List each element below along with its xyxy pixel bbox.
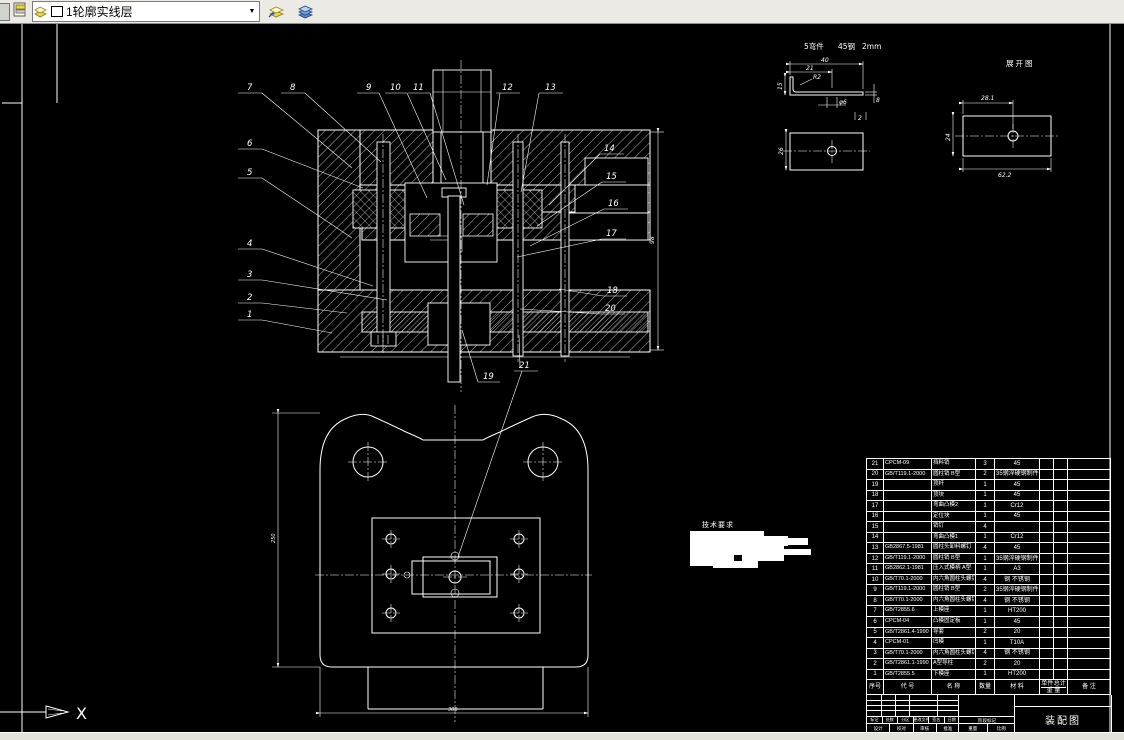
- parts-cell-name: 内六角圆柱头螺钉: [932, 648, 976, 659]
- parts-cell-remark: [1068, 669, 1111, 680]
- drawing-name-cell: 装配图: [1015, 695, 1111, 732]
- parts-cell-qty: 4: [976, 595, 995, 606]
- dim-plan-bottom: 300: [448, 707, 458, 713]
- parts-row: 13GB2867.5-1981圆柱头卸料螺钉445: [867, 543, 1111, 554]
- parts-cell-qty: 4: [976, 648, 995, 659]
- balloon-11: 11: [413, 83, 424, 93]
- ucs-icon: X: [0, 704, 87, 723]
- sign-label: 校对: [889, 723, 912, 732]
- parts-cell-name: 导套: [932, 627, 976, 638]
- parts-cell-no: 15: [867, 522, 884, 533]
- dim-unfold-bottom: 62.2: [998, 172, 1012, 179]
- rev-label: 处数: [882, 716, 898, 723]
- parts-list-table: 21CPCM-09挡料销34520GB/T119.1-2000圆柱销 B型235…: [866, 458, 1111, 695]
- parts-cell-qty: 4: [976, 543, 995, 554]
- parts-cell-code: [884, 490, 932, 501]
- parts-cell-name: 挡料销: [932, 459, 976, 470]
- parts-cell-w1: [1040, 532, 1054, 543]
- parts-cell-remark: [1068, 659, 1111, 670]
- parts-cell-code: GB/T70.1-2000: [884, 648, 932, 659]
- parts-cell-w2: [1054, 595, 1068, 606]
- parts-cell-qty: 1: [976, 564, 995, 575]
- parts-cell-material: 45: [995, 459, 1040, 470]
- balloon-6: 6: [247, 139, 253, 149]
- parts-cell-no: 5: [867, 627, 884, 638]
- balloon-13: 13: [545, 83, 556, 93]
- parts-cell-w2: [1054, 574, 1068, 585]
- parts-cell-code: [884, 511, 932, 522]
- detail-part-label: 5弯件: [804, 41, 824, 51]
- header-remark: 备 注: [1068, 680, 1111, 695]
- balloon-16: 16: [608, 199, 619, 209]
- balloon-10: 10: [390, 83, 401, 93]
- parts-cell-remark: [1068, 469, 1111, 480]
- parts-cell-name: 圆柱销 B型: [932, 469, 976, 480]
- parts-cell-no: 12: [867, 553, 884, 564]
- parts-cell-material: 45: [995, 490, 1040, 501]
- parts-cell-code: [884, 522, 932, 533]
- balloon-3: 3: [247, 270, 252, 280]
- balloon-19: 19: [483, 372, 494, 382]
- parts-row: 11GB2862.1-1981压入式模柄 A型1A3: [867, 564, 1111, 575]
- parts-cell-no: 3: [867, 648, 884, 659]
- parts-cell-material: 45: [995, 543, 1040, 554]
- parts-cell-material: 钢 不锈钢: [995, 574, 1040, 585]
- detail-material-label: 45钢: [838, 41, 855, 51]
- parts-cell-w2: [1054, 480, 1068, 491]
- parts-cell-remark: [1068, 616, 1111, 627]
- layers-toolbar: 1轮廓实线层 ▼: [0, 0, 1124, 24]
- parts-cell-w2: [1054, 659, 1068, 670]
- parts-cell-remark: [1068, 511, 1111, 522]
- parts-cell-no: 17: [867, 501, 884, 512]
- rev-label: 分区: [897, 716, 913, 723]
- parts-cell-w2: [1054, 638, 1068, 649]
- parts-cell-remark: [1068, 627, 1111, 638]
- tech-req-title: 技术要求: [702, 520, 734, 529]
- plan-view[interactable]: 300 250: [271, 405, 592, 722]
- parts-cell-name: 凹模: [932, 638, 976, 649]
- parts-cell-name: 内六角圆柱头螺钉: [932, 595, 976, 606]
- layer-name-label: 1轮廓实线层: [66, 3, 245, 20]
- balloon-9: 9: [366, 83, 371, 93]
- document-partial-icon: [0, 3, 10, 21]
- rev-label: 签名: [928, 716, 944, 723]
- header-weight-label: 重 量: [1041, 688, 1066, 694]
- parts-cell-w1: [1040, 627, 1054, 638]
- parts-cell-w2: [1054, 501, 1068, 512]
- sign-label: 批准: [936, 723, 959, 732]
- parts-cell-no: 1: [867, 669, 884, 680]
- parts-row: 4CPCM-01凹模1T10A: [867, 638, 1111, 649]
- sign-label: 设计: [867, 723, 889, 732]
- parts-cell-name: A型导柱: [932, 659, 976, 670]
- revision-grid: 标记 处数 分区 更改文件号 签名 日期 设计 校对 审核 批准: [867, 695, 959, 732]
- header-weight: 单件 总计 重 量: [1040, 680, 1068, 695]
- parts-cell-remark: [1068, 648, 1111, 659]
- dim-bent-plan-left: 26: [778, 147, 785, 155]
- parts-cell-qty: 2: [976, 585, 995, 596]
- parts-cell-name: 销钉: [932, 522, 976, 533]
- parts-row: 19顶杆145: [867, 480, 1111, 491]
- parts-row: 1GB/T2855.5下模座1HT200: [867, 669, 1111, 680]
- parts-cell-remark: [1068, 595, 1111, 606]
- parts-cell-w1: [1040, 659, 1054, 670]
- parts-cell-qty: 1: [976, 606, 995, 617]
- parts-cell-no: 11: [867, 564, 884, 575]
- parts-cell-code: GB/T2855.5: [884, 669, 932, 680]
- parts-cell-qty: 1: [976, 501, 995, 512]
- parts-cell-name: 压入式模柄 A型: [932, 564, 976, 575]
- parts-cell-code: GB/T2861.4-1990: [884, 627, 932, 638]
- parts-cell-material: 45: [995, 480, 1040, 491]
- header-code: 代 号: [884, 680, 932, 695]
- parts-cell-code: GB/T119.1-2000: [884, 585, 932, 596]
- parts-cell-material: 35钢淬硬钢制件: [995, 585, 1040, 596]
- parts-cell-qty: 1: [976, 616, 995, 627]
- parts-cell-no: 6: [867, 616, 884, 627]
- parts-cell-w2: [1054, 564, 1068, 575]
- parts-cell-w1: [1040, 490, 1054, 501]
- balloon-20: 20: [605, 304, 616, 314]
- parts-cell-w2: [1054, 669, 1068, 680]
- parts-cell-material: 45: [995, 616, 1040, 627]
- parts-cell-no: 2: [867, 659, 884, 670]
- parts-cell-qty: 4: [976, 522, 995, 533]
- scale-label: 比例: [987, 724, 1016, 732]
- balloon-12: 12: [502, 83, 513, 93]
- parts-cell-no: 9: [867, 585, 884, 596]
- parts-cell-qty: 1: [976, 480, 995, 491]
- parts-cell-remark: [1068, 522, 1111, 533]
- parts-cell-code: GB/T2855.6: [884, 606, 932, 617]
- parts-cell-material: 20: [995, 659, 1040, 670]
- parts-cell-name: 上模座: [932, 606, 976, 617]
- dim-section-height: 98: [649, 236, 656, 244]
- parts-cell-no: 20: [867, 469, 884, 480]
- parts-cell-no: 13: [867, 543, 884, 554]
- parts-cell-no: 4: [867, 638, 884, 649]
- dim-bent-top: 40: [821, 57, 829, 64]
- parts-cell-material: 45: [995, 511, 1040, 522]
- parts-cell-qty: 2: [976, 469, 995, 480]
- parts-row: 17弯曲凸模21Cr12: [867, 501, 1111, 512]
- dim-unfold-top: 28.1: [981, 95, 994, 102]
- parts-cell-qty: 2: [976, 627, 995, 638]
- parts-cell-w1: [1040, 648, 1054, 659]
- parts-row: 5GB/T2861.4-1990导套220: [867, 627, 1111, 638]
- parts-cell-code: CPCM-04: [884, 616, 932, 627]
- detail-unfolded[interactable]: 展开图 28.1 24 62.2: [945, 59, 1059, 179]
- parts-cell-no: 18: [867, 490, 884, 501]
- parts-cell-name: 弯曲凸模1: [932, 532, 976, 543]
- parts-cell-qty: 1: [976, 638, 995, 649]
- balloon-7: 7: [247, 83, 253, 93]
- parts-cell-w2: [1054, 627, 1068, 638]
- parts-cell-w1: [1040, 480, 1054, 491]
- parts-cell-remark: [1068, 574, 1111, 585]
- parts-cell-w2: [1054, 553, 1068, 564]
- balloon-17: 17: [606, 229, 617, 239]
- die-insert-plan[interactable]: [412, 552, 497, 597]
- parts-row: 20GB/T119.1-2000圆柱销 B型235钢淬硬钢制件: [867, 469, 1111, 480]
- parts-cell-remark: [1068, 606, 1111, 617]
- dim-bent-thick: 2: [858, 115, 862, 122]
- parts-cell-qty: 1: [976, 553, 995, 564]
- parts-cell-w1: [1040, 501, 1054, 512]
- tech-requirements-note: 技术要求: [690, 520, 811, 568]
- layer-previous-button[interactable]: [292, 0, 318, 23]
- parts-cell-code: [884, 501, 932, 512]
- dim-bent-hole: φ6: [839, 99, 847, 106]
- layer-color-swatch[interactable]: [51, 6, 63, 17]
- parts-row: 6CPCM-04凸模固定板145: [867, 616, 1111, 627]
- parts-cell-w2: [1054, 490, 1068, 501]
- parts-cell-code: GB/T119.1-2000: [884, 469, 932, 480]
- parts-cell-name: 定位块: [932, 511, 976, 522]
- stage-weight-scale: 阶段标记 重量 比例: [959, 695, 1015, 732]
- parts-cell-code: GB2862.1-1981: [884, 564, 932, 575]
- parts-cell-qty: 3: [976, 459, 995, 470]
- parts-cell-name: 圆柱头卸料螺钉: [932, 543, 976, 554]
- parts-cell-no: 16: [867, 511, 884, 522]
- parts-cell-w2: [1054, 459, 1068, 470]
- parts-cell-w1: [1040, 669, 1054, 680]
- parts-row: 9GB/T119.1-2000圆柱销 B型235钢淬硬钢制件: [867, 585, 1111, 596]
- rev-label: 日期: [944, 716, 960, 723]
- dim-bend-radius: R2: [813, 74, 821, 81]
- parts-cell-w2: [1054, 585, 1068, 596]
- drawing-name: 装配图: [1015, 707, 1111, 732]
- balloon-21: 21: [519, 361, 530, 371]
- parts-cell-no: 21: [867, 459, 884, 470]
- parts-cell-w2: [1054, 469, 1068, 480]
- parts-row: 12GB/T119.1-2000圆柱销 B型135钢淬硬钢制件: [867, 553, 1111, 564]
- parts-cell-remark: [1068, 490, 1111, 501]
- layer-state-icon: [33, 5, 48, 19]
- parts-cell-qty: 1: [976, 532, 995, 543]
- horizontal-scroll-strip[interactable]: [0, 732, 1124, 740]
- parts-cell-material: 35钢淬硬钢制件: [995, 469, 1040, 480]
- section-view[interactable]: 98 7 8 9 10 11 12 13 14 15 16 17 18 20 6…: [238, 60, 664, 557]
- section-height-dimension: 98: [649, 132, 664, 350]
- parts-cell-material: Cr12: [995, 501, 1040, 512]
- balloon-5: 5: [247, 168, 252, 178]
- parts-cell-qty: 1: [976, 511, 995, 522]
- parts-cell-qty: 2: [976, 659, 995, 670]
- parts-cell-w1: [1040, 553, 1054, 564]
- parts-cell-name: 圆柱销 B型: [932, 553, 976, 564]
- parts-cell-remark: [1068, 553, 1111, 564]
- dim-bent-left: 15: [777, 82, 784, 90]
- layer-previous-icon: [296, 4, 314, 20]
- balloon-8: 8: [290, 83, 296, 93]
- parts-cell-w1: [1040, 469, 1054, 480]
- parts-row: 7GB/T2855.6上模座1HT200: [867, 606, 1111, 617]
- parts-cell-w1: [1040, 564, 1054, 575]
- plan-bottom-tab: [368, 667, 543, 709]
- parts-cell-qty: 1: [976, 669, 995, 680]
- parts-row: 10GB/T70.1-2000内六角圆柱头螺钉4钢 不锈钢: [867, 574, 1111, 585]
- unfold-title: 展开图: [1006, 59, 1035, 68]
- parts-cell-qty: 4: [976, 574, 995, 585]
- parts-cell-name: 顶块: [932, 490, 976, 501]
- parts-cell-w1: [1040, 585, 1054, 596]
- parts-row: 18顶块145: [867, 490, 1111, 501]
- parts-cell-w2: [1054, 616, 1068, 627]
- parts-cell-no: 19: [867, 480, 884, 491]
- balloon-4: 4: [247, 239, 252, 249]
- parts-cell-material: T10A: [995, 638, 1040, 649]
- header-material: 材 料: [995, 680, 1040, 695]
- balloon-2: 2: [247, 293, 252, 303]
- parts-cell-w1: [1040, 595, 1054, 606]
- parts-cell-w2: [1054, 522, 1068, 533]
- rev-label: 更改文件号: [913, 716, 929, 723]
- detail-bent-part[interactable]: 5弯件 45钢 2mm R2 40 21 15 φ6 8 2 26: [777, 41, 881, 170]
- parts-cell-qty: 1: [976, 490, 995, 501]
- revision-labels-row: 标记 处数 分区 更改文件号 签名 日期: [867, 716, 959, 723]
- parts-cell-remark: [1068, 459, 1111, 470]
- weight-label: 重量: [959, 724, 987, 732]
- parts-cell-w2: [1054, 606, 1068, 617]
- parts-cell-code: [884, 480, 932, 491]
- parts-cell-w2: [1054, 648, 1068, 659]
- parts-cell-remark: [1068, 564, 1111, 575]
- parts-cell-material: 35钢淬硬钢制件: [995, 553, 1040, 564]
- sign-label: 审核: [913, 723, 936, 732]
- parts-cell-name: 顶杆: [932, 480, 976, 491]
- parts-cell-w2: [1054, 511, 1068, 522]
- parts-cell-remark: [1068, 638, 1111, 649]
- header-weight-unit: 单件: [1041, 681, 1053, 687]
- parts-cell-w1: [1040, 543, 1054, 554]
- parts-cell-code: GB2867.5-1981: [884, 543, 932, 554]
- parts-cell-w1: [1040, 511, 1054, 522]
- parts-cell-material: A3: [995, 564, 1040, 575]
- parts-cell-no: 8: [867, 595, 884, 606]
- parts-cell-material: 钢 不锈钢: [995, 595, 1040, 606]
- parts-row: 3GB/T70.1-2000内六角圆柱头螺钉4钢 不锈钢: [867, 648, 1111, 659]
- parts-cell-code: CPCM-09: [884, 459, 932, 470]
- header-weight-total: 总计: [1054, 681, 1066, 687]
- parts-cell-w1: [1040, 638, 1054, 649]
- parts-cell-code: GB/T2861.1-1990: [884, 659, 932, 670]
- header-qty: 数量: [976, 680, 995, 695]
- balloon-18: 18: [607, 286, 618, 296]
- title-block: 标记 处数 分区 更改文件号 签名 日期 设计 校对 审核 批准 阶段标记 重量…: [866, 695, 1112, 733]
- layer-dropdown[interactable]: 1轮廓实线层 ▼: [32, 1, 260, 22]
- parts-cell-name: 凸模固定板: [932, 616, 976, 627]
- parts-cell-material: HT200: [995, 669, 1040, 680]
- parts-row: 15销钉4: [867, 522, 1111, 533]
- parts-cell-w1: [1040, 606, 1054, 617]
- detail-thickness-label: 2mm: [862, 42, 881, 51]
- parts-cell-no: 10: [867, 574, 884, 585]
- parts-cell-no: 7: [867, 606, 884, 617]
- parts-row: 2GB/T2861.1-1990A型导柱220: [867, 659, 1111, 670]
- parts-cell-name: 内六角圆柱头螺钉: [932, 574, 976, 585]
- header-no: 序号: [867, 680, 884, 695]
- dowel-pin[interactable]: [513, 142, 523, 356]
- layer-properties-icon[interactable]: [12, 1, 29, 23]
- parts-cell-material: 20: [995, 627, 1040, 638]
- parts-cell-material: HT200: [995, 606, 1040, 617]
- parts-row: 8GB/T70.1-2000内六角圆柱头螺钉4钢 不锈钢: [867, 595, 1111, 606]
- parts-cell-remark: [1068, 585, 1111, 596]
- dim-plan-left: 250: [271, 533, 277, 543]
- parts-cell-material: Cr12: [995, 532, 1040, 543]
- dim-unfold-left: 24: [945, 133, 952, 141]
- parts-cell-w2: [1054, 543, 1068, 554]
- make-object-layer-current-button[interactable]: [263, 0, 289, 23]
- parts-header-row: 序号 代 号 名 称 数量 材 料 单件 总计 重 量 备 注: [867, 680, 1111, 695]
- parts-cell-remark: [1068, 532, 1111, 543]
- parts-cell-code: GB/T70.1-2000: [884, 574, 932, 585]
- parts-cell-material: 钢 不锈钢: [995, 648, 1040, 659]
- parts-cell-w1: [1040, 522, 1054, 533]
- parts-cell-remark: [1068, 480, 1111, 491]
- rev-label: 标记: [867, 716, 882, 723]
- parts-cell-w1: [1040, 574, 1054, 585]
- parts-cell-no: 14: [867, 532, 884, 543]
- parts-cell-code: GB/T70.1-2000: [884, 595, 932, 606]
- balloon-15: 15: [606, 172, 617, 182]
- dim-bent-mid: 21: [806, 65, 814, 72]
- parts-row: 14弯曲凸模11Cr12: [867, 532, 1111, 543]
- dim-bent-right: 8: [876, 97, 880, 104]
- stage-label: 阶段标记: [959, 716, 1015, 723]
- parts-cell-remark: [1068, 501, 1111, 512]
- parts-cell-name: 弯曲凸模2: [932, 501, 976, 512]
- cap-screw[interactable]: [561, 142, 569, 356]
- parts-cell-remark: [1068, 543, 1111, 554]
- dropdown-arrow-icon[interactable]: ▼: [245, 8, 259, 15]
- parts-row: 16定位块145: [867, 511, 1111, 522]
- parts-cell-w2: [1054, 532, 1068, 543]
- make-layer-current-icon: [267, 4, 285, 20]
- balloon-1: 1: [247, 310, 252, 320]
- balloon-14: 14: [604, 144, 615, 154]
- parts-cell-w1: [1040, 459, 1054, 470]
- parts-cell-name: 下模座: [932, 669, 976, 680]
- parts-row: 21CPCM-09挡料销345: [867, 459, 1111, 470]
- parts-cell-code: CPCM-01: [884, 638, 932, 649]
- signature-row: 设计 校对 审核 批准: [867, 723, 959, 732]
- parts-cell-code: GB/T119.1-2000: [884, 553, 932, 564]
- header-name: 名 称: [932, 680, 976, 695]
- ucs-x-label: X: [76, 704, 87, 723]
- parts-cell-name: 圆柱销 B型: [932, 585, 976, 596]
- parts-cell-material: [995, 522, 1040, 533]
- parts-cell-w1: [1040, 616, 1054, 627]
- parts-cell-code: [884, 532, 932, 543]
